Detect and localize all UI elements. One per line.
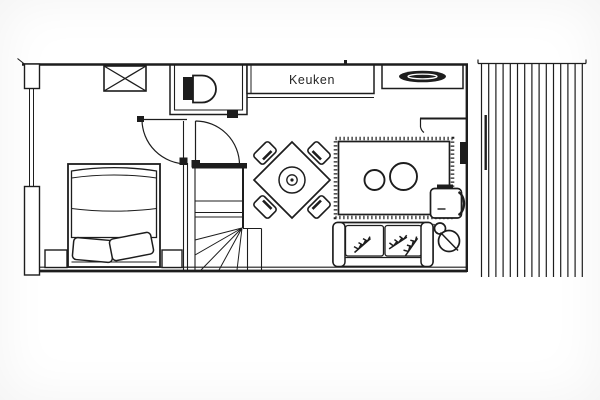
nightstand-icon — [45, 250, 67, 268]
door-stop-left — [180, 158, 188, 166]
double-bed-icon — [68, 164, 160, 267]
bed-pillow-left — [72, 237, 114, 262]
terrace-decking-icon — [478, 60, 586, 278]
nightstand-icon — [162, 250, 182, 268]
deck-edge — [478, 60, 586, 64]
sofa-cushion-left — [346, 226, 384, 257]
bed-blanket — [72, 168, 157, 238]
dining-set — [253, 141, 332, 220]
hall-doors — [137, 116, 240, 168]
door-hinge-left — [137, 116, 144, 122]
stair-winders — [195, 228, 242, 270]
door-post — [227, 110, 238, 118]
niche-return — [421, 119, 425, 133]
sofa-icon — [333, 223, 433, 267]
wardrobe-icon — [104, 66, 146, 91]
toilet-tank — [183, 77, 193, 100]
stair-landing — [243, 229, 262, 271]
wall-pier-bottom — [25, 187, 40, 276]
wall-pier-top — [25, 64, 40, 89]
stair-top-wall — [192, 163, 247, 169]
door-icon — [142, 120, 187, 165]
sofa-armrest-right — [421, 223, 433, 267]
sofa-armrest-left — [333, 223, 345, 267]
toilet-room — [170, 64, 247, 118]
side-table-top — [431, 189, 462, 219]
kitchen-sink-icon — [399, 71, 446, 83]
floor-lamp-icon — [434, 223, 460, 252]
kitchen-counter: Keuken — [247, 65, 463, 98]
table-centerpiece-dot — [290, 178, 293, 181]
staircase-icon — [192, 163, 262, 270]
window-icon — [30, 89, 34, 187]
bedroom-divider-wall — [184, 121, 188, 270]
side-table-icon — [431, 185, 464, 219]
kitchen-label: Keuken — [289, 73, 335, 87]
floor-plan-page: Keuken — [0, 0, 600, 400]
deck-planks — [482, 64, 583, 278]
wall-tick — [344, 60, 347, 64]
radiator-icon — [460, 142, 467, 164]
door-icon — [196, 121, 240, 165]
toilet-icon — [193, 76, 216, 103]
stair-treads — [195, 201, 243, 217]
floor-plan: Keuken — [0, 0, 600, 400]
